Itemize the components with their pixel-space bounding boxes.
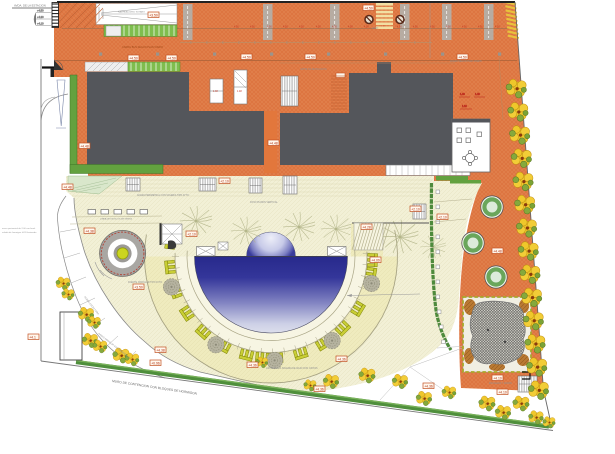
svg-text:4.50: 4.50 <box>430 25 435 28</box>
svg-text:+0.96: +0.96 <box>151 361 160 365</box>
svg-text:+2.10: +2.10 <box>411 207 420 211</box>
svg-text:VADO: VADO <box>372 27 379 30</box>
svg-text:+4.50: +4.50 <box>458 55 467 59</box>
svg-text:FOSO PIANOS VERTICAL: FOSO PIANOS VERTICAL <box>250 201 278 204</box>
svg-text:+4.50: +4.50 <box>242 55 251 59</box>
svg-text:4.50: 4.50 <box>462 25 467 28</box>
svg-text:+4.48: +4.48 <box>63 185 72 189</box>
svg-text:LINEA DE KIOSCOS DE VENTA: LINEA DE KIOSCOS DE VENTA <box>100 218 132 221</box>
svg-text:1.48: 1.48 <box>475 93 480 96</box>
svg-text:+4.30: +4.30 <box>37 15 44 19</box>
svg-text:+4.48: +4.48 <box>269 141 278 145</box>
svg-text:LIMITE PLAZA SOLERIA DE 40x40: LIMITE PLAZA SOLERIA DE 40x40 CON JUNTAS <box>266 367 318 370</box>
svg-text:+2.10: +2.10 <box>187 232 196 236</box>
svg-text:+4.48: +4.48 <box>80 144 89 148</box>
svg-text:+4.48: +4.48 <box>493 249 502 253</box>
svg-text:+4.50: +4.50 <box>306 55 315 59</box>
svg-text:+4.09: +4.09 <box>371 258 380 262</box>
svg-text:ACERA SEGUN PLAN VIARIO: ACERA SEGUN PLAN VIARIO <box>450 60 482 63</box>
svg-text:4.50: 4.50 <box>250 25 255 28</box>
svg-text:+4.28: +4.28 <box>362 225 371 229</box>
svg-text:+4.10: +4.10 <box>498 390 507 394</box>
svg-text:1.48: 1.48 <box>460 93 465 96</box>
svg-text:ESCALERA Y RAMPA: ESCALERA Y RAMPA <box>489 382 512 385</box>
svg-text:4.50: 4.50 <box>364 25 369 28</box>
svg-text:+3.50: +3.50 <box>149 13 158 17</box>
svg-text:+2.10: +2.10 <box>438 215 447 219</box>
svg-text:4.50: 4.50 <box>495 25 500 28</box>
svg-text:+2.10: +2.10 <box>220 179 229 183</box>
svg-text:+4.10: +4.10 <box>493 376 502 380</box>
svg-text:CARRIL BUS SEGUN PLAN VIARIO: CARRIL BUS SEGUN PLAN VIARIO <box>122 46 163 49</box>
svg-text:acera perimetral de 2.00 con b: acera perimetral de 2.00 con bord. <box>2 227 36 230</box>
svg-text:+4.36: +4.36 <box>337 357 346 361</box>
svg-text:+4.38: +4.38 <box>156 348 165 352</box>
svg-text:+4.36: +4.36 <box>315 387 324 391</box>
svg-text:4.50: 4.50 <box>348 25 353 28</box>
svg-text:4.50: 4.50 <box>299 25 304 28</box>
svg-text:4.50: 4.50 <box>446 25 451 28</box>
svg-text:FUENTE CIRCULAR TIPO AYTO.: FUENTE CIRCULAR TIPO AYTO. <box>128 281 163 284</box>
svg-text:4.50: 4.50 <box>283 25 288 28</box>
svg-text:AVDA. DE LA ESTACION: AVDA. DE LA ESTACION <box>14 3 46 7</box>
svg-text:1.48: 1.48 <box>237 90 242 93</box>
svg-text:+3.50: +3.50 <box>134 285 143 289</box>
svg-text:solado de hormigon H-20 fratas: solado de hormigon H-20 fratasado <box>2 231 37 234</box>
svg-text:+4.50: +4.50 <box>129 56 138 60</box>
svg-text:ACERA PERIMETRAL CON SOLERIA T: ACERA PERIMETRAL CON SOLERIA TIPO AYTO. <box>137 194 190 197</box>
svg-text:4.50: 4.50 <box>413 25 418 28</box>
svg-text:RAMPA ACCESO SOTANO: RAMPA ACCESO SOTANO <box>118 11 145 14</box>
svg-text:1.48: 1.48 <box>213 90 218 93</box>
svg-text:4.50: 4.50 <box>267 25 272 28</box>
svg-text:4.50: 4.50 <box>316 25 321 28</box>
svg-text:+4.36: +4.36 <box>424 384 433 388</box>
svg-text:4.50: 4.50 <box>332 25 337 28</box>
svg-text:1.10: 1.10 <box>462 105 467 108</box>
svg-text:LIMITE DE EDIFICACION: LIMITE DE EDIFICACION <box>300 68 327 71</box>
svg-text:+4.50: +4.50 <box>364 6 373 10</box>
svg-text:4.50: 4.50 <box>397 25 402 28</box>
svg-text:+4.36: +4.36 <box>248 363 257 367</box>
svg-text:+4.50: +4.50 <box>37 9 44 13</box>
svg-text:+4.50: +4.50 <box>167 56 176 60</box>
svg-text:+4.1: +4.1 <box>29 335 36 339</box>
svg-text:+4.38: +4.38 <box>85 229 94 233</box>
svg-text:4.50: 4.50 <box>478 25 483 28</box>
svg-text:+4.10: +4.10 <box>37 22 44 26</box>
svg-text:4.50: 4.50 <box>234 25 239 28</box>
